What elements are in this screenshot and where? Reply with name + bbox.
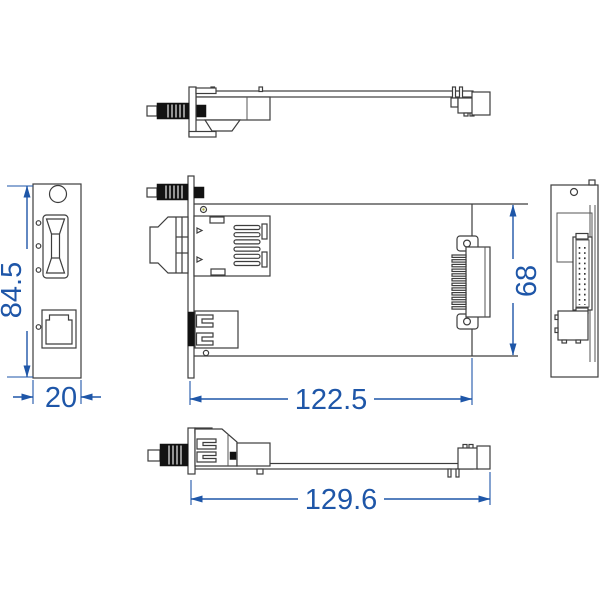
transceiver-edge [196, 97, 270, 120]
dim-label-board-length: 122.5 [295, 384, 368, 416]
dimension-129-6: 129.6 [191, 472, 490, 516]
coax-connector-plan [147, 184, 204, 200]
rj45-plan [188, 311, 238, 348]
cad-drawing: 84.5 20 122.5 68 129.6 [0, 0, 600, 600]
latch [205, 120, 240, 131]
st-module-bottom [195, 429, 270, 466]
plan-view [147, 176, 528, 378]
screw-hole-accent [202, 208, 204, 210]
front-panel-view [33, 184, 81, 378]
dimension-122-5: 122.5 [190, 358, 472, 416]
bracket-bottom [188, 428, 195, 474]
fiber-transceiver [194, 216, 270, 276]
din-connector-bottom [448, 445, 490, 478]
rj45-port-front [42, 310, 76, 348]
front-panel [33, 184, 81, 378]
dimension-68: 68 [511, 205, 543, 355]
dim-label-front-width: 20 [45, 382, 77, 414]
dim-label-board-width: 68 [511, 265, 543, 297]
din-connector-plan [452, 236, 490, 329]
dimension-84-5: 84.5 [0, 186, 33, 377]
dim-label-overall-length: 129.6 [305, 484, 378, 516]
bracket-plan [188, 176, 194, 378]
mounting-hole [50, 186, 67, 203]
pcb-edge [196, 91, 473, 97]
drawing-canvas: 84.5 20 122.5 68 129.6 [0, 0, 600, 600]
dim-label-front-height: 84.5 [0, 262, 28, 318]
rear-hole [571, 189, 578, 196]
st-port-front [43, 215, 68, 278]
pin-header-rear [573, 234, 592, 314]
rear-lower-block [555, 311, 588, 343]
bottom-edge-view [148, 428, 490, 477]
rear-panel-view [551, 180, 598, 377]
screw-hole-bottom [203, 350, 208, 355]
bracket-edge [189, 87, 196, 136]
dimension-20: 20 [13, 380, 101, 414]
coax-tip [147, 106, 157, 116]
coax-connector-bottom [148, 444, 188, 466]
st-coupling-plan [150, 217, 188, 273]
top-edge-view [147, 87, 490, 137]
